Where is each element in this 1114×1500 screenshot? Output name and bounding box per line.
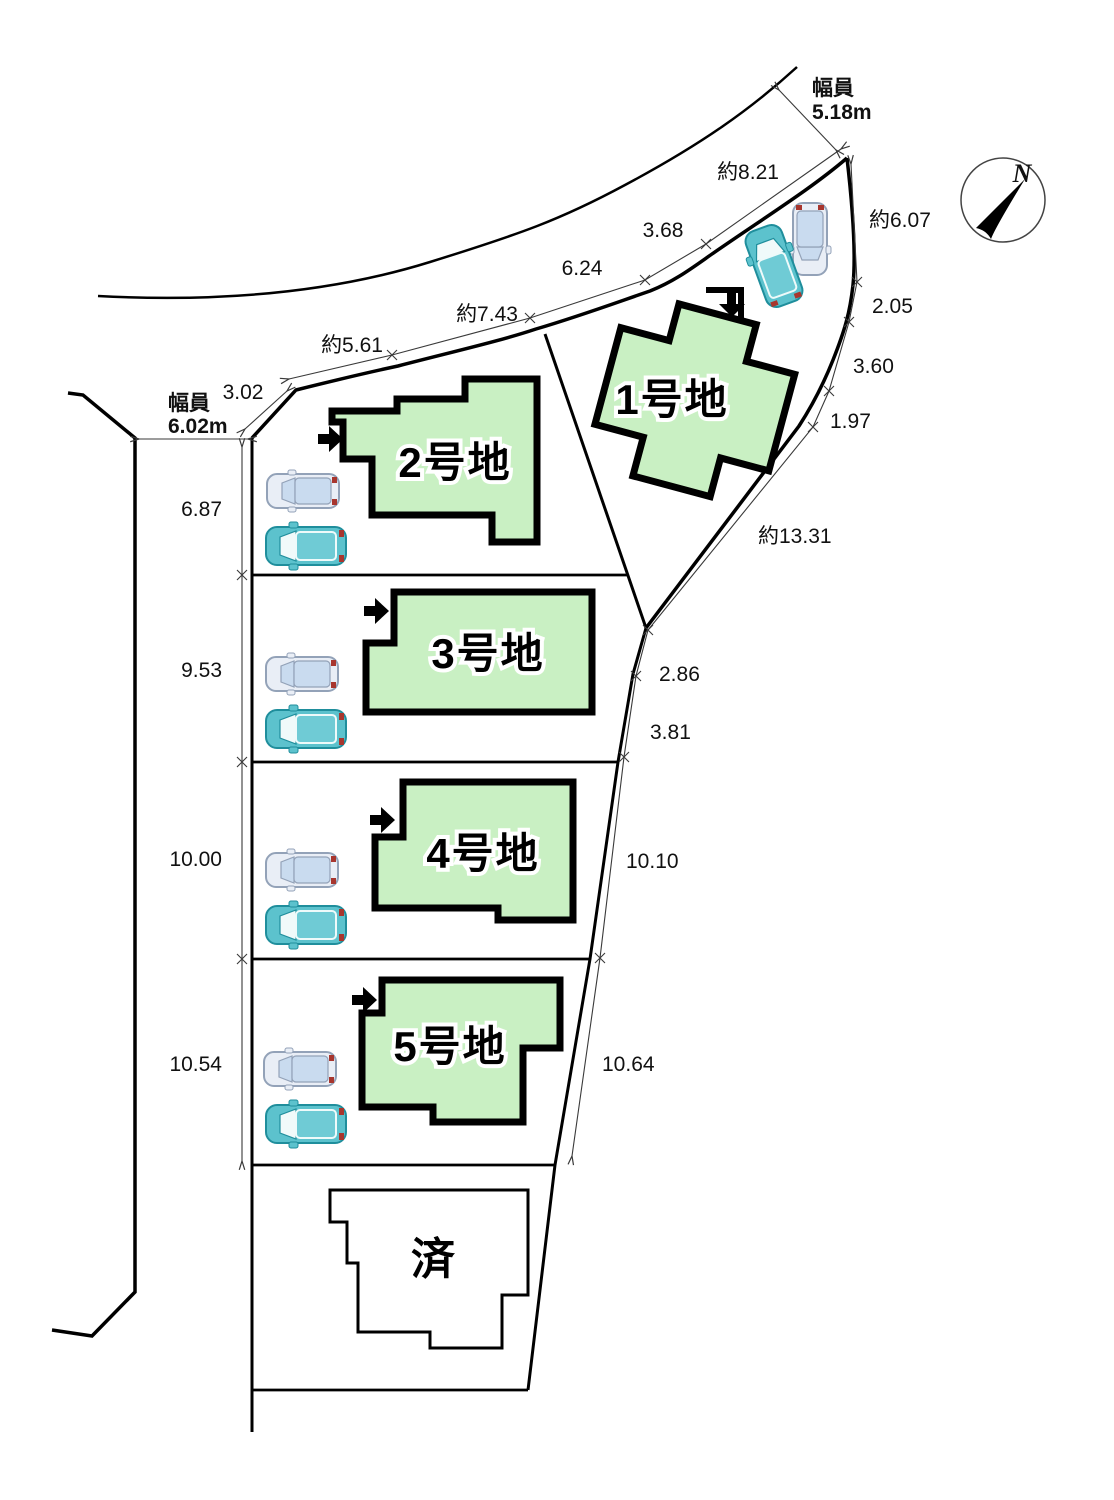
- top-road-width-label: 幅員: [812, 77, 854, 100]
- lot-2-entrance-arrow: [318, 426, 343, 452]
- top-road-width-value: 5.18m: [812, 101, 872, 124]
- car-icon: [266, 1100, 346, 1148]
- dim-label: 2.05: [872, 295, 913, 318]
- car-icon: [266, 705, 346, 753]
- compass-north-label: N: [1012, 159, 1033, 188]
- site-plan-canvas: 3.02 約5.61 約7.43 6.24 3.68 約8.21 約6.07 2…: [0, 0, 1114, 1500]
- dim-label: 10.00: [169, 848, 222, 871]
- left-road-width-label: 幅員: [168, 392, 210, 415]
- dim-label: 6.24: [562, 257, 603, 280]
- car-icon: [789, 203, 831, 275]
- lot-3-label: 3号地: [431, 630, 544, 677]
- compass-circle: [961, 158, 1045, 242]
- dim-label: 3.68: [643, 219, 684, 242]
- dim-label: 10.64: [602, 1053, 655, 1076]
- lot-1-label: 1号地: [615, 376, 728, 423]
- car-icon: [266, 653, 338, 695]
- lot-5-entrance-arrow: [352, 987, 377, 1013]
- dim-label: 6.87: [181, 498, 222, 521]
- dim-label: 9.53: [181, 659, 222, 682]
- top-road-upper-edge: [98, 67, 797, 298]
- dim-label: 10.54: [169, 1053, 222, 1076]
- left-road-outer-edge: [52, 393, 135, 1336]
- dim-label: 約7.43: [456, 303, 518, 326]
- dim-label: 10.10: [626, 850, 679, 873]
- compass: N: [961, 158, 1045, 242]
- dim-label: 約13.31: [758, 525, 832, 548]
- dim-label: 1.97: [830, 410, 871, 433]
- dim-label: 2.86: [659, 663, 700, 686]
- dim-label: 3.02: [223, 381, 264, 404]
- dim-label: 3.81: [650, 721, 691, 744]
- left-road-width-value: 6.02m: [168, 415, 228, 438]
- lot-4-label: 4号地: [426, 830, 539, 877]
- dim-label: 3.60: [853, 355, 894, 378]
- dim-label: 約8.21: [717, 161, 779, 184]
- site-plan: 3.02 約5.61 約7.43 6.24 3.68 約8.21 約6.07 2…: [0, 0, 1114, 1500]
- sold-lot-label: 済: [411, 1235, 456, 1284]
- car-icon: [266, 522, 346, 570]
- lot-5-label: 5号地: [393, 1023, 506, 1070]
- lot-3-entrance-arrow: [364, 598, 389, 624]
- car-icon: [266, 849, 338, 891]
- lot-2-label: 2号地: [398, 439, 511, 486]
- dim-label: 約6.07: [869, 209, 931, 232]
- car-icon: [264, 1048, 336, 1090]
- lot-4-entrance-arrow: [370, 807, 395, 833]
- dim-label: 約5.61: [321, 334, 383, 357]
- car-icon: [267, 470, 339, 512]
- car-icon: [266, 901, 346, 949]
